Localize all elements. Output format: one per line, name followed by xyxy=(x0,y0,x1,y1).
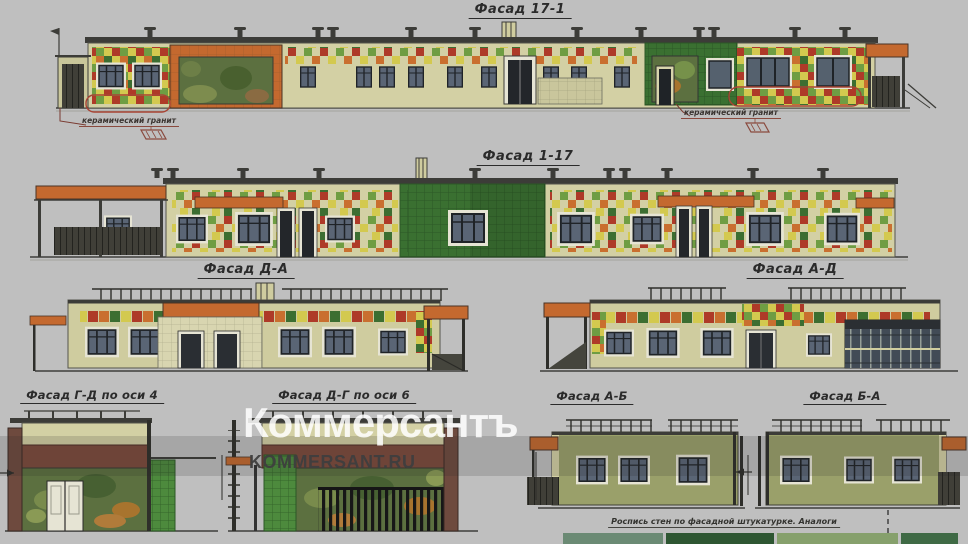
watermark-site: KOMMERSANT.RU xyxy=(249,452,416,473)
elevations-sheet: Коммерсантъ KOMMERSANT.RU Фасад 17-1 Фас… xyxy=(0,0,968,544)
mural-note: Роспись стен по фасадной штукатурке. Ана… xyxy=(608,517,840,528)
facade-d-a-drawing xyxy=(30,283,468,371)
facade-g-d-axis-4-label: Фасад Г-Д по оси 4 xyxy=(20,388,164,404)
facade-1-17-drawing xyxy=(30,158,908,260)
facade-b-a-label: Фасад Б-А xyxy=(803,389,886,405)
facade-a-b-label: Фасад А-Б xyxy=(550,389,633,405)
facade-1-17-label: Фасад 1-17 xyxy=(477,149,580,166)
facade-17-1-label: Фасад 17-1 xyxy=(469,2,572,19)
material-callout-left: керамический гранит xyxy=(79,116,179,127)
facade-a-d-drawing xyxy=(540,288,958,371)
reference-photo-strips xyxy=(563,533,958,544)
facade-17-1-drawing xyxy=(50,22,936,139)
watermark-brand: Коммерсантъ xyxy=(243,399,518,447)
facade-d-a-label: Фасад Д-А xyxy=(198,262,295,279)
facade-a-d-label: Фасад А-Д xyxy=(747,262,844,279)
facade-d-g-axis-6-label: Фасад Д-Г по оси 6 xyxy=(272,388,416,404)
material-callout-right: керамический гранит xyxy=(681,108,781,119)
